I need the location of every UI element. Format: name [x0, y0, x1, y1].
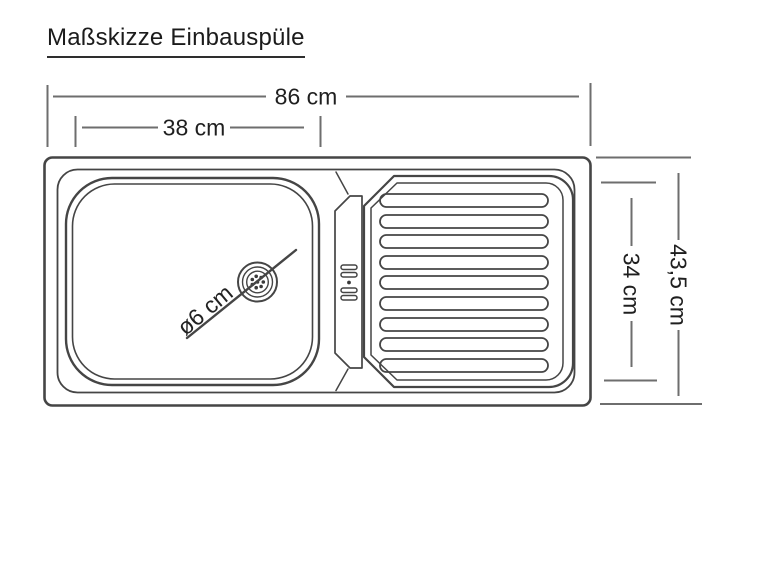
dimension-basin-width: 38 cm — [76, 115, 321, 148]
slot-dot — [347, 281, 351, 285]
slot — [341, 296, 357, 301]
total-depth-label: 43,5 cm — [666, 244, 692, 326]
drainer-rib — [380, 194, 548, 207]
rim-junction-line — [336, 172, 348, 194]
basin-outer-outline — [66, 178, 319, 385]
slot — [341, 265, 357, 270]
drain-hole — [254, 286, 258, 290]
total-width-label: 86 cm — [275, 84, 338, 110]
drainer-rib — [380, 297, 548, 310]
drainer-rib — [380, 256, 548, 269]
drainer-rib — [380, 215, 548, 228]
drain-hole — [262, 280, 266, 284]
drainer-rib — [380, 359, 548, 372]
basin — [66, 178, 319, 385]
drainer-rib — [380, 318, 548, 331]
slot — [341, 273, 357, 278]
drainer-rib — [380, 276, 548, 289]
inner-depth-label: 34 cm — [619, 253, 645, 316]
drain-hole — [254, 275, 258, 279]
dimension-inner-depth: 34 cm — [601, 183, 657, 381]
drain-diameter-callout: ø6 cm — [172, 250, 296, 340]
rim-junction-line — [336, 369, 348, 391]
basin-width-label: 38 cm — [163, 115, 226, 141]
drain-hole — [251, 278, 255, 282]
drainer-rib — [380, 235, 548, 248]
dimension-total-depth: 43,5 cm — [596, 158, 702, 405]
drain-hole — [259, 285, 263, 289]
drainer — [364, 176, 573, 387]
drainer-ribs — [380, 194, 548, 372]
measurement-sketch-page: Maßskizze Einbauspüle 86 cm 38 cm 43,5 c… — [0, 0, 770, 578]
dimension-total-width: 86 cm — [48, 83, 591, 147]
sink-technical-drawing: 86 cm 38 cm 43,5 cm 34 cm — [0, 0, 770, 578]
drain-diameter-label: ø6 cm — [172, 279, 238, 340]
tap-ledge — [335, 172, 362, 391]
slot — [341, 288, 357, 293]
overflow-slots — [341, 265, 357, 300]
drainer-rib — [380, 338, 548, 351]
